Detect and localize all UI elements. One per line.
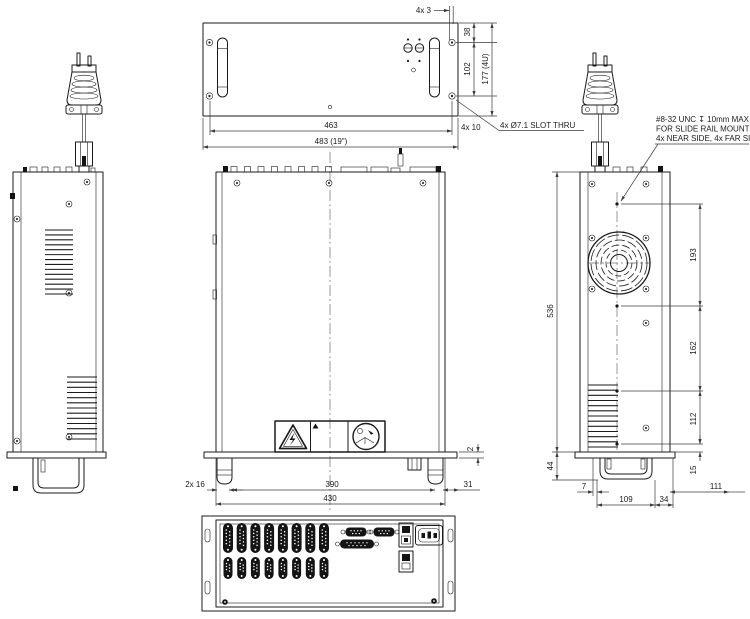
dim-label: 162 [689, 341, 698, 355]
screw [14, 438, 20, 444]
note-line1: #8-32 UNC ↧ 10mm MAX [656, 115, 750, 124]
rack-handle-profile [600, 458, 652, 479]
power-plug-strain-relief [66, 53, 102, 172]
dsub-connector [250, 523, 260, 553]
vent-grille [588, 385, 618, 447]
front-foot-left [217, 458, 232, 484]
dim-label: 15 [689, 465, 698, 474]
front-dimensions: 4x 3 38 102 177 (4U) 463 483 (19") 4x 10… [203, 6, 584, 150]
dim-label: 430 [323, 494, 337, 503]
screw-head [10, 193, 15, 199]
front-panel-edge [575, 452, 675, 458]
dsub-connector [264, 523, 274, 553]
power-cord-top-profile [398, 148, 403, 166]
screw [643, 425, 649, 431]
screw [66, 290, 72, 296]
screw [589, 181, 595, 187]
dsub-connector-grid [223, 523, 329, 579]
db25-connector [336, 540, 379, 549]
fan-screw [643, 286, 649, 292]
dsub-connector [292, 557, 301, 579]
front-panel-outline [203, 23, 458, 116]
dim-label: 7 [582, 482, 587, 491]
side-view-dimensions: #8-32 UNC ↧ 10mm MAX FOR SLIDE RAIL MOUN… [546, 115, 750, 508]
rear-edge-connector-profiles [23, 167, 95, 172]
dsub-connector [224, 557, 233, 579]
dim-label: 109 [619, 495, 633, 504]
vent-grille-lower [67, 377, 97, 439]
mounting-slot-hole [206, 93, 212, 99]
high-voltage-warning-icon [280, 425, 307, 449]
rack-ear-slot [205, 529, 210, 542]
engineering-drawing: 4x 3 38 102 177 (4U) 463 483 (19") 4x 10… [0, 0, 750, 619]
screw [643, 320, 649, 326]
triangle-icon [313, 424, 319, 429]
dsub-connector [306, 557, 315, 579]
dim-label: 536 [546, 304, 555, 318]
front-indicator-cluster [404, 38, 424, 72]
fan-screw [589, 286, 595, 292]
iec-c20-inlet [416, 526, 443, 546]
mounting-note: #8-32 UNC ↧ 10mm MAX FOR SLIDE RAIL MOUN… [621, 115, 750, 201]
dim-label: 44 [546, 461, 555, 470]
dim-label: 102 [463, 62, 472, 76]
left-side-outline [13, 172, 103, 452]
dsub-connector [320, 557, 329, 579]
screw [66, 201, 72, 207]
note-line3: 4x NEAR SIDE, 4x FAR SIDE [656, 134, 750, 143]
dim-label: 4x 3 [416, 6, 432, 15]
de9-connector [341, 528, 371, 537]
dsub-connector [278, 557, 287, 579]
top-view-outline [216, 172, 445, 452]
dim-label: 4x 10 [461, 123, 481, 132]
switch-module [399, 551, 413, 572]
rear-view [202, 516, 455, 611]
mounting-slot-hole [449, 93, 455, 99]
mounting-slot-hole [449, 39, 455, 45]
circle-read-manual-icon [353, 424, 379, 450]
screw [14, 216, 20, 222]
rack-ear-slot [448, 581, 453, 594]
rear-face [216, 520, 443, 607]
dsub-connector [237, 523, 247, 553]
mounting-slot-hole [206, 39, 212, 45]
dim-label: 111 [710, 482, 723, 491]
front-center-hole [328, 105, 331, 108]
dsub-connector [278, 523, 288, 553]
front-handle-slot-right [430, 38, 440, 97]
fan-screw [589, 235, 595, 241]
dsub-connector [319, 523, 329, 553]
dsub-connector [251, 557, 260, 579]
left-side-view [7, 53, 106, 493]
dim-label: 483 (19") [315, 137, 348, 146]
vent-grille-upper [45, 230, 73, 294]
dim-label: 112 [689, 412, 698, 425]
dsub-connector [223, 523, 233, 553]
dim-label: 193 [689, 248, 698, 262]
fuse-module [399, 523, 413, 547]
slide-rail-hole [615, 304, 618, 307]
dim-label: 34 [660, 495, 669, 504]
top-view [204, 148, 457, 512]
dsub-connector [265, 557, 274, 579]
rack-ear-slot [448, 529, 453, 542]
dim-label: 4x Ø7.1 SLOT THRU [500, 121, 576, 130]
front-foot-right [428, 458, 443, 484]
screw [326, 180, 332, 186]
dim-label: 31 [464, 480, 473, 489]
bottom-bracket [408, 458, 421, 470]
front-panel-edge [204, 452, 457, 458]
dim-label: 390 [325, 480, 339, 489]
rear-corner-screw [431, 598, 437, 604]
de9-connector [369, 528, 399, 537]
dim-label: 463 [324, 121, 338, 130]
note-line2: FOR SLIDE RAIL MOUNTING [656, 125, 750, 134]
rack-handle-profile [13, 458, 84, 493]
rear-edge-connector-profiles [613, 166, 663, 172]
front-handle-slot-left [218, 38, 228, 97]
screw [84, 179, 90, 185]
screw [643, 181, 649, 187]
dsub-connector [305, 523, 315, 553]
slide-rail-hole [615, 442, 618, 445]
dim-label: 2 [466, 446, 475, 451]
rack-ear-slot [205, 581, 210, 594]
right-side-outline [580, 172, 670, 452]
dim-label: 177 (4U) [481, 53, 490, 84]
front-panel-edge [7, 452, 106, 458]
drawing-svg: 4x 3 38 102 177 (4U) 463 483 (19") 4x 10… [0, 0, 750, 619]
screw [420, 180, 426, 186]
dsub-connector [292, 523, 302, 553]
screw [234, 180, 240, 186]
dim-label: 38 [463, 27, 472, 36]
front-view [203, 23, 458, 116]
fan-screw [643, 235, 649, 241]
dsub-connector [237, 557, 246, 579]
dim-label: 2x 16 [185, 480, 205, 489]
slide-rail-hole [615, 202, 618, 205]
rear-corner-screw [222, 599, 228, 605]
rear-edge-connector-profiles [223, 166, 441, 172]
power-plug-strain-relief [582, 53, 618, 172]
